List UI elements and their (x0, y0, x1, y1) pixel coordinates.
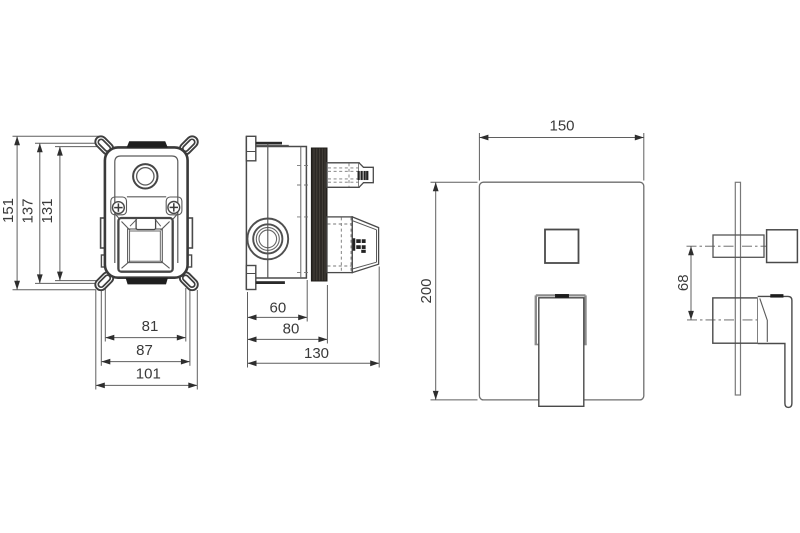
svg-text:137: 137 (20, 198, 37, 223)
svg-text:101: 101 (136, 366, 161, 383)
svg-text:150: 150 (549, 118, 574, 135)
svg-text:80: 80 (283, 321, 300, 338)
svg-text:151: 151 (0, 198, 17, 223)
svg-text:68: 68 (675, 274, 692, 291)
svg-text:131: 131 (39, 198, 56, 223)
svg-text:200: 200 (418, 278, 435, 303)
svg-text:81: 81 (142, 318, 159, 335)
svg-text:60: 60 (270, 300, 287, 317)
svg-text:130: 130 (304, 345, 329, 362)
svg-text:87: 87 (136, 342, 153, 359)
